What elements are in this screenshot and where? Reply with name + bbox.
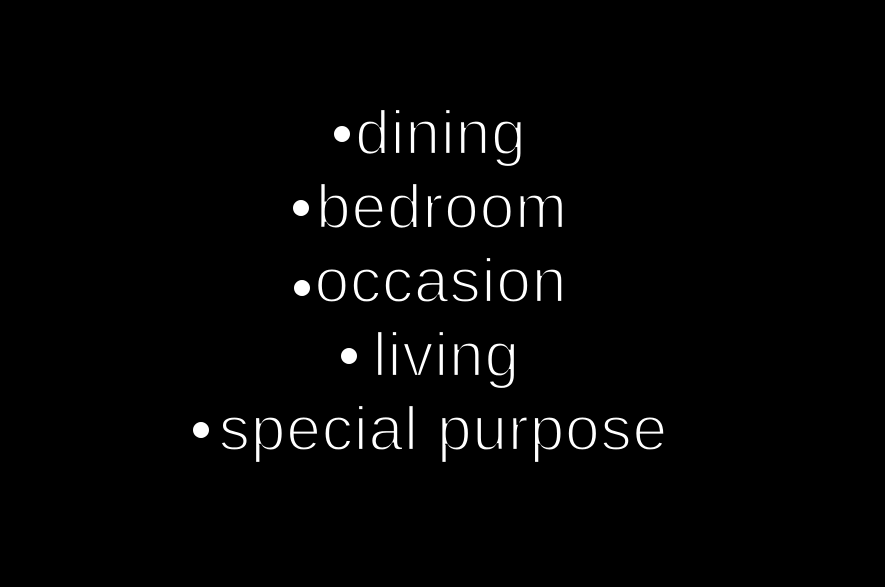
list-item-label: bedroom (316, 171, 568, 245)
bullet-icon (294, 280, 310, 296)
bullet-icon (293, 200, 309, 216)
bullet-icon (341, 348, 357, 364)
slide-canvas: dining bedroom occasion living special p… (0, 0, 885, 587)
list-item-dining: dining (334, 97, 526, 171)
bullet-icon (334, 126, 350, 142)
list-item-occasion: occasion (294, 245, 568, 319)
list-item-label: special purpose (219, 393, 668, 467)
list-item-label: dining (355, 97, 526, 171)
bullet-list: dining bedroom occasion living special p… (193, 97, 668, 467)
list-item-bedroom: bedroom (293, 171, 568, 245)
list-item-living: living (341, 319, 520, 393)
list-item-label: living (373, 319, 520, 393)
list-item-special-purpose: special purpose (193, 393, 668, 467)
bullet-icon (193, 422, 209, 438)
list-item-label: occasion (315, 245, 568, 319)
